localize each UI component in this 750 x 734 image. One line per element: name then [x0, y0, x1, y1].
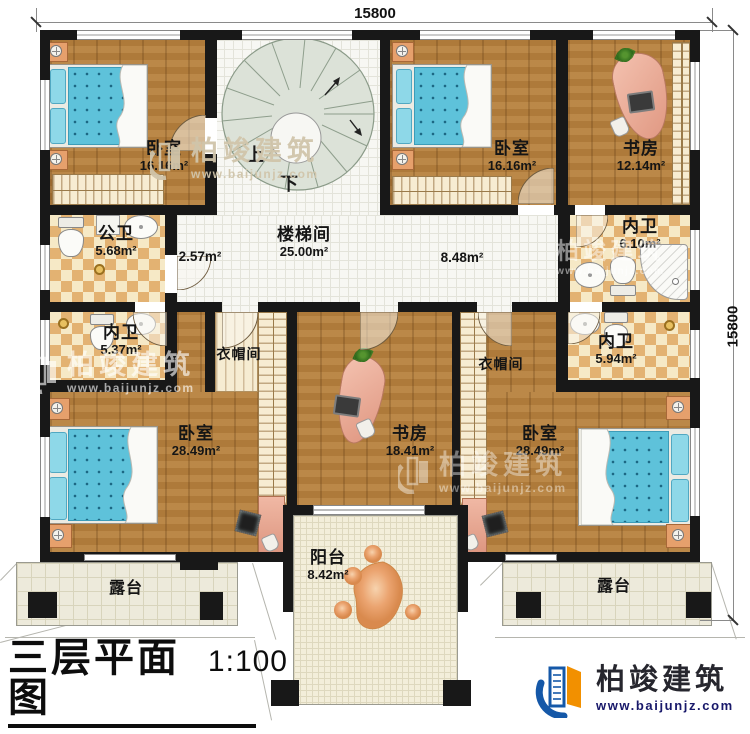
computer-monitor-icon: [333, 394, 362, 417]
window: [690, 330, 700, 378]
sliding-door-terrace-left: [84, 554, 176, 561]
door-arc: [222, 312, 258, 348]
lamp-icon: [396, 45, 408, 57]
nightstand: [666, 524, 692, 548]
room-label-balcony: 阳台 8.42m²: [278, 549, 378, 582]
window: [40, 320, 50, 365]
window: [242, 30, 352, 40]
window: [593, 30, 675, 40]
wall: [458, 505, 468, 612]
wall: [398, 302, 477, 312]
brand-logo: 柏竣建筑 www.baijunjz.com: [534, 660, 734, 718]
wall: [458, 552, 700, 562]
room-label-terrace-left: 露台: [76, 580, 176, 598]
wardrobe-bedroom-top-left: [52, 174, 164, 205]
room-label-bath-public: 公卫 5.68m²: [66, 225, 166, 258]
window: [690, 428, 700, 516]
closet-strip-left: [258, 312, 287, 505]
room-label-stairwell: 楼梯间 25.00m²: [254, 226, 354, 259]
spiral-staircase: [214, 32, 384, 202]
wall: [558, 205, 570, 312]
bed-bottom-right: [578, 428, 692, 526]
door-arc: [478, 312, 512, 346]
sheet-line: [252, 563, 276, 640]
lamp-icon: [672, 401, 684, 413]
brand-url: www.baijunjz.com: [596, 698, 734, 713]
title-block: 三层平面图 1:100 本层建筑面积：204.05m² 层高：3.3m: [8, 638, 288, 734]
door-arc: [360, 312, 398, 350]
sheet-line: [495, 637, 745, 638]
lamp-icon: [52, 529, 64, 541]
nightstand: [392, 42, 414, 62]
pillar: [28, 592, 57, 618]
bed-bottom-left: [44, 426, 158, 524]
room-label-study-top-right: 书房 12.14m²: [591, 140, 691, 173]
hall-area-right: 8.48m²: [422, 251, 502, 266]
window: [77, 30, 180, 40]
floor-drain-icon: [58, 318, 69, 329]
pillar: [686, 592, 711, 618]
dimension-extension: [700, 30, 733, 31]
page-title: 三层平面图: [8, 638, 192, 718]
dimension-label-top: 15800: [345, 5, 405, 22]
dimension-label-right: 15800: [725, 297, 742, 357]
window: [40, 437, 50, 517]
wall: [180, 552, 218, 570]
sheet-line: [0, 563, 17, 580]
wall: [556, 380, 700, 392]
bed-top-left: [46, 64, 148, 148]
room-label-study-center: 书房 18.41m²: [360, 425, 460, 458]
wardrobe-bedroom-top-right: [392, 176, 512, 205]
room-label-ensuite-top-right: 内卫 6.10m²: [590, 218, 690, 251]
bed-top-right: [392, 64, 492, 148]
door-arc: [518, 168, 554, 204]
window: [690, 230, 700, 290]
lamp-icon: [51, 402, 63, 414]
wall: [425, 505, 458, 515]
room-label-ensuite-mid-right: 内卫 5.94m²: [566, 333, 666, 366]
floor-plan-sheet: 卧室 16.16m² 卧室 16.16m² 书房 12.14m² 内卫 6.10…: [0, 0, 750, 734]
room-label-ensuite-mid-left: 内卫 5.37m²: [71, 324, 171, 357]
wall: [602, 302, 700, 312]
room-label-bedroom-bottom-left: 卧室 28.49m²: [146, 425, 246, 458]
floor-drain-icon: [664, 320, 675, 331]
pillar: [200, 592, 223, 620]
stair-down-label: 下: [280, 170, 298, 196]
wall: [40, 380, 177, 392]
window: [40, 245, 50, 290]
wall: [293, 505, 313, 515]
sink-icon: [574, 262, 606, 288]
lamp-icon: [672, 529, 684, 541]
room-label-bedroom-bottom-right: 卧室 28.49m²: [490, 425, 590, 458]
wall: [40, 205, 217, 215]
room-label-cloak-left: 衣帽间: [189, 347, 289, 362]
room-label-terrace-right: 露台: [564, 578, 664, 596]
toilet-icon: [610, 256, 636, 296]
dimension-extension: [700, 620, 733, 621]
lamp-icon: [396, 153, 408, 165]
computer-monitor-icon: [627, 90, 656, 113]
wall: [452, 302, 460, 515]
window: [40, 80, 50, 150]
title-underline: [8, 724, 256, 728]
window: [690, 62, 700, 150]
lamp-icon: [50, 45, 62, 57]
nightstand: [392, 150, 414, 170]
hall-area-left: 2.57m²: [160, 250, 240, 265]
door-opening: [518, 205, 554, 215]
wall: [556, 30, 568, 205]
pillar: [443, 680, 471, 706]
drawing-scale: 1:100: [208, 645, 288, 679]
nightstand: [666, 396, 692, 420]
wardrobe-study-top-right: [672, 42, 690, 205]
door-opening: [575, 205, 605, 215]
sheet-line: [480, 563, 503, 586]
brand-name: 柏竣建筑: [596, 666, 734, 695]
lamp-icon: [50, 153, 62, 165]
sliding-door-terrace-right: [505, 554, 557, 561]
wall: [40, 302, 135, 312]
stair-up-label: 上: [246, 141, 264, 167]
pillar: [516, 592, 541, 618]
wall: [258, 302, 360, 312]
room-label-bedroom-top-right: 卧室 16.16m²: [462, 140, 562, 173]
window: [420, 30, 530, 40]
wall: [380, 30, 390, 215]
blanket: [111, 65, 147, 147]
floor-drain-icon: [94, 264, 105, 275]
dimension-line-top: [36, 22, 713, 23]
wall: [287, 302, 297, 515]
room-label-bedroom-top-left: 卧室 16.16m²: [114, 140, 214, 173]
sliding-door-balcony: [313, 505, 425, 515]
wall: [512, 302, 556, 312]
room-label-cloak-right: 衣帽间: [451, 357, 551, 372]
brand-logo-icon: [534, 660, 588, 718]
